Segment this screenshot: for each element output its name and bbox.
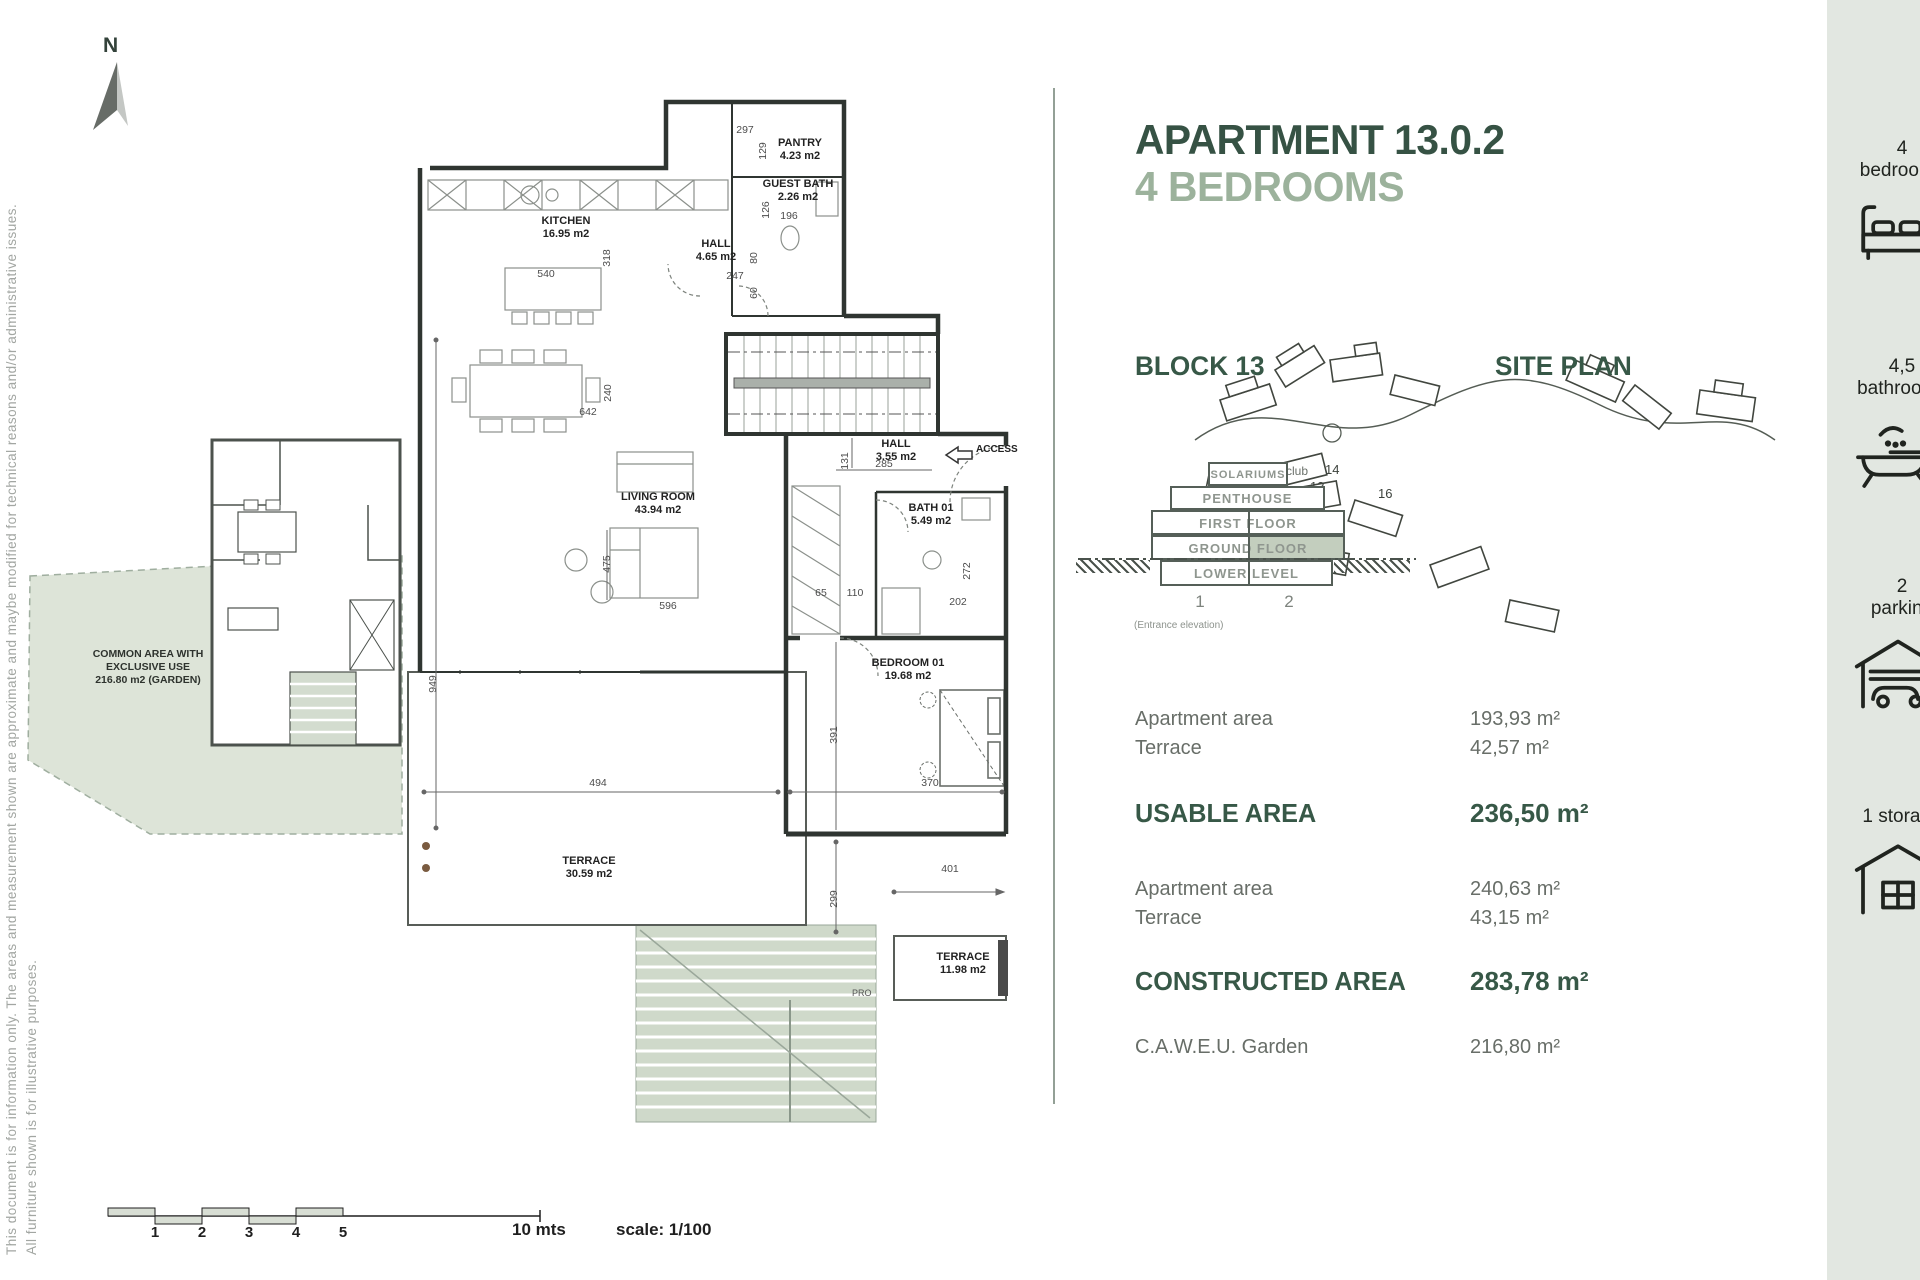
usable-row1-value: 193,93 m² [1470,708,1560,731]
site-plan-title: SITE PLAN [1495,351,1632,382]
dimension: 272 [961,562,973,580]
room-label-living: LIVING ROOM43.94 m2 [621,491,695,517]
garden-steps [636,925,876,1122]
dimension: 80 [748,252,760,264]
bathtub-icon [1853,414,1920,498]
elevation-unit-divider [1248,510,1250,586]
dimension: 401 [941,863,959,875]
page-title: APARTMENT 13.0.2 [1135,116,1505,164]
dimension: 475 [601,555,613,573]
sidebar-parking-label: parking [1812,598,1920,620]
dimension: 370 [921,777,939,789]
north-arrow-icon [93,62,128,130]
dimension: 642 [579,406,597,418]
dimension: 240 [602,384,614,402]
sidebar-bedrooms-count: 4 [1812,138,1920,160]
usable-total-value: 236,50 m² [1470,798,1589,829]
sidebar-bathrooms-label: bathrooms [1812,378,1920,400]
access-label: ACCESS [976,444,1018,455]
pro-label: PRO [852,988,872,998]
garden-row-label: C.A.W.E.U. Garden [1135,1036,1308,1059]
dimension: 297 [736,124,754,136]
storage-icon [1853,840,1920,920]
scale-tick-5: 5 [339,1224,347,1241]
access-arrow-icon [946,447,972,463]
common-area-label: COMMON AREA WITH EXCLUSIVE USE 216.80 m2… [93,648,204,687]
dimension: 318 [601,249,613,267]
dimension: 540 [537,268,555,280]
dimension: 285 [875,458,893,470]
constructed-row2-value: 43,15 m² [1470,907,1549,930]
dimension: 391 [828,726,840,744]
entrance-elevation-diagram: SOLARIUMS PENTHOUSE FIRST FLOOR GROUND F… [1090,462,1430,652]
ground-hatch-left [1076,560,1150,573]
interior-stairs [726,334,938,434]
room-label-terrace-small: TERRACE11.98 m2 [936,951,989,977]
elevation-caption: (Entrance elevation) [1134,620,1224,631]
dimension: 247 [726,270,744,282]
dimension: 494 [589,777,607,789]
dimension: 126 [760,201,772,219]
dimension: 196 [780,210,798,222]
scale-bar [108,1208,540,1224]
dimension: 110 [847,587,864,599]
scale-length-label: 10 mts [512,1220,566,1240]
bed [920,690,1004,786]
room-label-terrace-main: TERRACE30.59 m2 [562,855,615,881]
block-title: BLOCK 13 [1135,351,1265,382]
sidebar-parking-count: 2 [1812,576,1920,598]
bed-icon [1853,196,1920,268]
page-subtitle: 4 BEDROOMS [1135,163,1404,211]
scale-ratio-label: scale: 1/100 [616,1220,711,1240]
scale-tick-2: 2 [198,1224,206,1241]
elevation-floor-penthouse: PENTHOUSE [1170,486,1325,510]
dimension: 129 [757,142,769,160]
constructed-row1-label: Apartment area [1135,878,1273,901]
constructed-total-label: CONSTRUCTED AREA [1135,966,1406,997]
brochure-page: { "page": { "note_line1": "This document… [0,0,1920,1280]
dimension: 60 [748,287,760,299]
north-label: N [103,34,118,58]
disclaimer-note-2: All furniture shown is for illustrative … [24,960,39,1255]
room-label-guest-bath: GUEST BATH2.26 m2 [763,178,834,204]
room-label-bath01: BATH 015.49 m2 [908,502,953,528]
usable-row1-label: Apartment area [1135,708,1273,731]
sidebar-bedrooms-label: bedrooms [1812,160,1920,182]
constructed-total-value: 283,78 m² [1470,966,1589,997]
constructed-row1-value: 240,63 m² [1470,878,1560,901]
room-label-kitchen: KITCHEN16.95 m2 [542,215,591,241]
terrace-main-outline [408,672,806,925]
dimension: 596 [659,600,677,612]
wardrobe [792,486,840,634]
dimension: 299 [828,890,840,908]
dimension: 131 [839,452,851,470]
dimension: 65 [815,587,827,599]
elevation-unit-2: 2 [1274,592,1304,612]
scale-tick-4: 4 [292,1224,300,1241]
kitchen-cabinets [428,180,728,210]
dimension: 949 [427,675,439,693]
vertical-divider [1053,88,1055,1104]
ground-hatch-right [1334,560,1410,573]
parking-garage-icon [1853,634,1920,714]
room-label-bedroom01: BEDROOM 0119.68 m2 [872,657,945,683]
dimension: 202 [949,596,967,608]
living-furniture [565,452,698,603]
disclaimer-note-1: This document is for information only. T… [4,204,19,1255]
elevation-floor-solariums: SOLARIUMS [1208,462,1288,486]
garden-row-value: 216,80 m² [1470,1036,1560,1059]
neighbour-unit [212,440,400,745]
scale-tick-3: 3 [245,1224,253,1241]
scale-tick-1: 1 [151,1224,159,1241]
sidebar-storage-label: 1 storage [1812,806,1920,828]
elevation-floor-lower: LOWER LEVEL [1160,560,1333,586]
usable-row2-label: Terrace [1135,737,1202,760]
dining-set [452,350,600,432]
usable-total-label: USABLE AREA [1135,798,1316,829]
room-label-hall-upper: HALL4.65 m2 [696,238,736,264]
elevation-unit-1: 1 [1185,592,1215,612]
sidebar-bathrooms-count: 4,5 [1812,356,1920,378]
room-label-pantry: PANTRY4.23 m2 [778,137,822,163]
usable-row2-value: 42,57 m² [1470,737,1549,760]
constructed-row2-label: Terrace [1135,907,1202,930]
